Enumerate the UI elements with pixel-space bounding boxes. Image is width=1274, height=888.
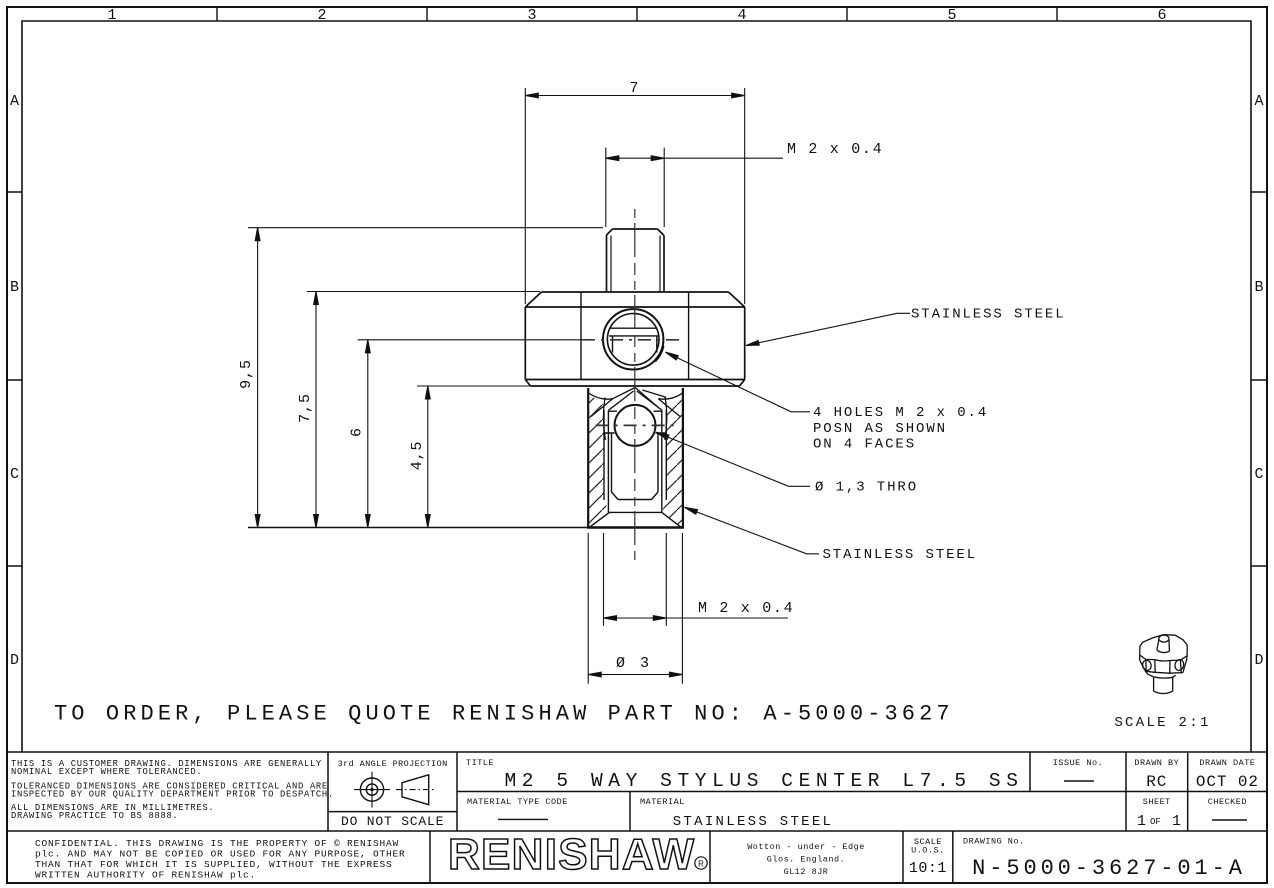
svg-text:Ø 3: Ø 3 [616,655,652,672]
svg-text:M 2 x 0.4: M 2 x 0.4 [787,141,883,158]
svg-text:M 2 x 0.4: M 2 x 0.4 [698,600,794,617]
svg-text:SCALE 2:1: SCALE 2:1 [1114,715,1210,731]
svg-text:3: 3 [527,7,536,24]
svg-text:STAINLESS STEEL: STAINLESS STEEL [673,814,834,830]
svg-text:D: D [1254,652,1263,669]
svg-text:4: 4 [737,7,746,24]
svg-text:DRAWING PRACTICE TO BS 8888.: DRAWING PRACTICE TO BS 8888. [11,811,178,821]
svg-text:1: 1 [107,7,116,24]
svg-text:10:1: 10:1 [909,860,947,877]
svg-text:GL12 8JR: GL12 8JR [784,867,829,877]
svg-text:M2 5 WAY STYLUS CENTER L7.5 SS: M2 5 WAY STYLUS CENTER L7.5 SS [504,770,1023,792]
svg-text:B: B [1254,279,1263,296]
svg-text:CHECKED: CHECKED [1208,797,1247,807]
svg-text:OCT 02: OCT 02 [1196,773,1259,791]
svg-text:4,5: 4,5 [409,441,426,471]
svg-text:RENISHAW: RENISHAW [448,830,694,879]
svg-text:THAN THAT FOR WHICH IT IS SUPP: THAN THAT FOR WHICH IT IS SUPPLIED, WITH… [35,859,393,870]
svg-text:DO NOT SCALE: DO NOT SCALE [341,814,444,829]
svg-text:3rd ANGLE PROJECTION: 3rd ANGLE PROJECTION [338,759,448,769]
svg-text:1: 1 [1137,813,1146,830]
svg-text:Glos. England.: Glos. England. [767,855,845,865]
svg-text:N-5000-3627-01-A: N-5000-3627-01-A [972,856,1246,881]
svg-text:A: A [10,93,19,110]
svg-text:DRAWING No.: DRAWING No. [963,837,1025,847]
svg-text:Wotton - under - Edge: Wotton - under - Edge [747,842,865,852]
svg-text:OF: OF [1150,817,1161,827]
svg-text:7: 7 [630,80,640,97]
svg-text:STAINLESS STEEL: STAINLESS STEEL [823,547,978,563]
svg-text:ISSUE No.: ISSUE No. [1053,758,1103,768]
svg-text:4 HOLES M 2 x 0.4: 4 HOLES M 2 x 0.4 [813,405,988,421]
svg-text:5: 5 [947,7,956,24]
svg-text:TO ORDER, PLEASE QUOTE RENISHA: TO ORDER, PLEASE QUOTE RENISHAW PART NO:… [54,702,954,727]
svg-text:DRAWN BY: DRAWN BY [1134,758,1179,768]
svg-text:CONFIDENTIAL. THIS DRAWING IS: CONFIDENTIAL. THIS DRAWING IS THE PROPER… [35,838,399,849]
svg-text:DRAWN DATE: DRAWN DATE [1199,758,1255,768]
svg-text:2: 2 [317,7,326,24]
svg-text:D: D [10,652,19,669]
svg-text:1: 1 [1172,813,1181,830]
svg-text:B: B [10,279,19,296]
svg-text:NOMINAL EXCEPT WHERE TOLERANCE: NOMINAL EXCEPT WHERE TOLERANCED. [11,767,202,777]
svg-text:TITLE: TITLE [466,758,494,768]
svg-text:6: 6 [1157,7,1166,24]
svg-text:STAINLESS STEEL: STAINLESS STEEL [911,307,1066,323]
svg-text:C: C [10,466,19,483]
svg-text:U.O.S.: U.O.S. [911,846,945,856]
svg-text:POSN AS SHOWN: POSN AS SHOWN [813,421,947,437]
svg-text:Ø 1,3 THRO: Ø 1,3 THRO [815,480,918,496]
svg-text:R: R [698,860,704,869]
svg-text:C: C [1254,466,1263,483]
svg-text:INSPECTED BY OUR QUALITY DEPAR: INSPECTED BY OUR QUALITY DEPARTMENT PRIO… [11,790,334,800]
svg-text:A: A [1254,93,1263,110]
svg-text:MATERIAL TYPE CODE: MATERIAL TYPE CODE [467,797,568,807]
svg-text:MATERIAL: MATERIAL [640,797,685,807]
svg-text:9,5: 9,5 [238,359,255,389]
svg-text:WRITTEN AUTHORITY OF RENISHAW: WRITTEN AUTHORITY OF RENISHAW plc. [35,870,256,881]
svg-text:SHEET: SHEET [1143,797,1171,807]
svg-text:RC: RC [1146,773,1167,791]
svg-text:7,5: 7,5 [297,393,314,423]
svg-text:ON 4 FACES: ON 4 FACES [813,437,916,453]
svg-text:plc. AND MAY NOT BE COPIED OR: plc. AND MAY NOT BE COPIED OR USED FOR A… [35,849,406,860]
svg-text:6: 6 [349,427,366,437]
